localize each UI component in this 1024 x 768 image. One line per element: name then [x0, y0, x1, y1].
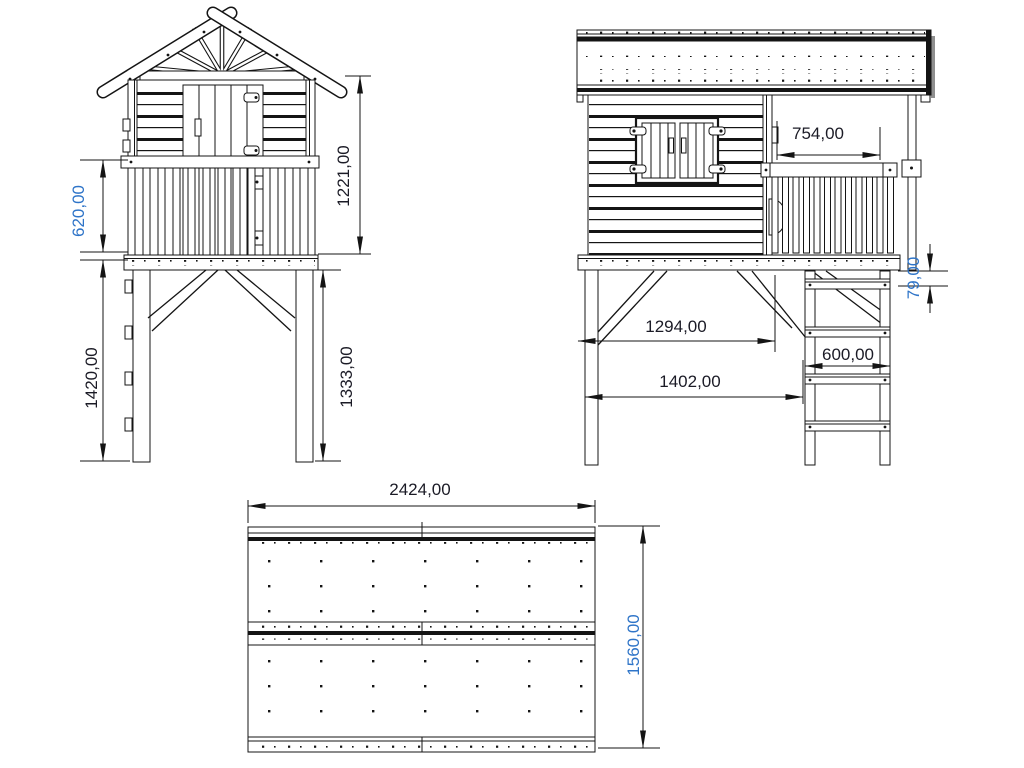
- roof-bracket-right: [921, 95, 930, 102]
- dimension-rail-height: 620,00: [69, 160, 128, 252]
- dimension-ladder-width-label: 600,00: [822, 345, 874, 364]
- technical-drawing: 620,00 1420,00 1221,00 1333,00: [0, 0, 1024, 768]
- front-platform: [124, 255, 318, 270]
- side-leg: [585, 270, 598, 465]
- roof-screws-upper: [252, 546, 590, 618]
- side-roof: [577, 30, 935, 102]
- front-view: 620,00 1420,00 1221,00 1333,00: [69, 13, 371, 462]
- gable-beam: [140, 71, 304, 80]
- ladder-stile-left: [805, 271, 815, 465]
- front-left-leg: [133, 270, 150, 462]
- dimension-ladder-width: 600,00: [805, 345, 890, 366]
- door-hinge-middle: [244, 146, 259, 155]
- dimension-roof-width-label: 1560,00: [624, 614, 643, 675]
- ladder-rung-1: [805, 279, 890, 289]
- ladder: [805, 271, 890, 465]
- dimension-step-offset: 79,00: [898, 244, 948, 313]
- ladder-rung-3: [805, 374, 890, 384]
- wall-hinge-bottom: [123, 140, 130, 152]
- dimension-brace-span: 1294,00: [578, 275, 775, 352]
- side-view: 754,00 79,00 1294,00 1402,00 600,00: [577, 30, 948, 465]
- roof-bracket-left: [577, 95, 583, 102]
- porch-slats: [772, 177, 894, 253]
- front-railing: [121, 156, 319, 255]
- dimension-left-leg-height: 1420,00: [80, 260, 130, 461]
- front-legs: [125, 270, 313, 462]
- siding-right: [263, 84, 306, 152]
- dimension-cabin-height: 1221,00: [318, 76, 371, 254]
- roof-screws-lower: [252, 650, 590, 734]
- dimension-porch-width: 754,00: [777, 121, 880, 160]
- dimension-step-offset-label: 79,00: [904, 257, 923, 300]
- ladder-rung-4: [805, 421, 890, 431]
- porch-top-rail: [761, 163, 897, 177]
- dimension-roof-length: 2424,00: [248, 480, 595, 523]
- roof-shadow: [931, 36, 935, 98]
- ladder-rung-2: [805, 327, 890, 337]
- siding-left: [137, 84, 183, 152]
- shutter-handle-right: [682, 138, 687, 153]
- front-braces: [148, 270, 295, 331]
- dimension-right-leg-height-label: 1333,00: [337, 346, 356, 407]
- drawing-canvas: 620,00 1420,00 1221,00 1333,00: [0, 0, 1024, 768]
- dimension-left-leg-height-label: 1420,00: [82, 347, 101, 408]
- corner-post-right: [306, 80, 315, 156]
- dimension-base-length: 1402,00: [585, 360, 803, 404]
- railing-slats: [128, 168, 315, 255]
- dimension-roof-width: 1560,00: [598, 526, 660, 748]
- front-right-leg: [296, 270, 313, 462]
- door-handle: [195, 119, 201, 136]
- dimension-brace-span-label: 1294,00: [645, 317, 706, 336]
- ladder-stile-right: [880, 271, 890, 465]
- dimension-base-length-label: 1402,00: [659, 372, 720, 391]
- side-window: [630, 118, 725, 183]
- shutter-handle-left: [669, 138, 674, 153]
- leg-brackets: [125, 280, 132, 431]
- roof-support-post: [902, 95, 921, 270]
- roof-top-view: 2424,00 1560,00: [248, 480, 660, 752]
- dimension-cabin-height-label: 1221,00: [334, 145, 353, 206]
- side-platform: [578, 255, 900, 270]
- door-hinge-top: [244, 93, 259, 102]
- dimension-porch-width-label: 754,00: [792, 124, 844, 143]
- railing-top-rail: [121, 156, 319, 168]
- dimension-rail-height-label: 620,00: [69, 185, 88, 237]
- dimension-right-leg-height: 1333,00: [315, 270, 356, 461]
- dimension-roof-length-label: 2424,00: [389, 480, 450, 499]
- wall-hinge-top: [123, 119, 130, 131]
